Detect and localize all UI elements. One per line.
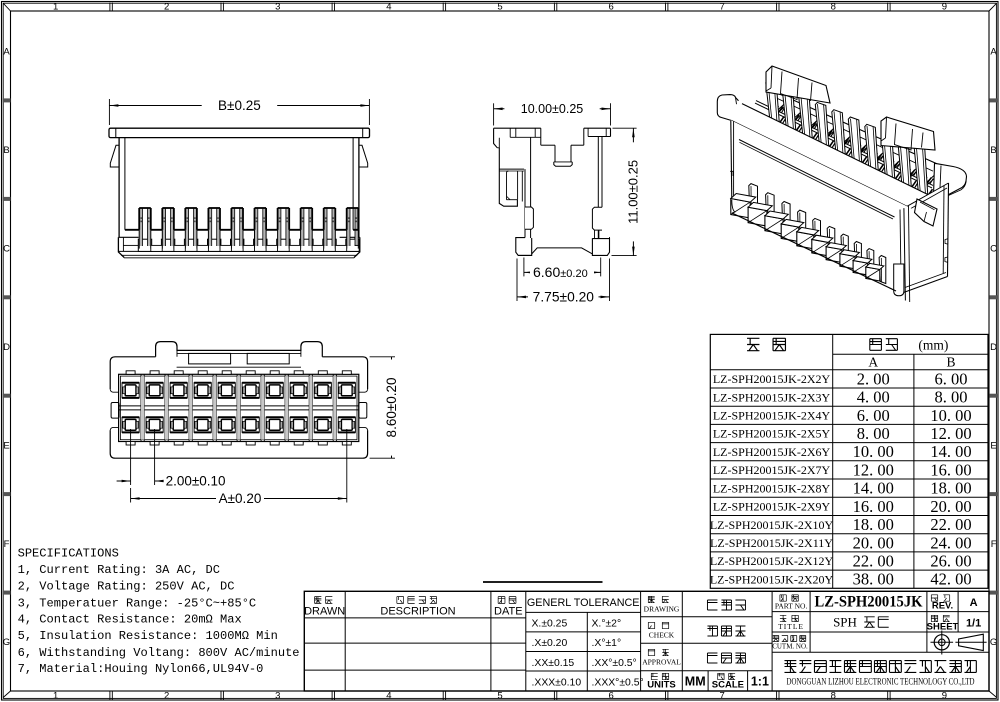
svg-text:E: E [990,440,996,451]
svg-text:MM: MM [685,675,706,689]
svg-text:5: 5 [497,2,502,13]
svg-text:24. 00: 24. 00 [930,533,971,552]
svg-text:A: A [868,355,878,370]
svg-text:3: 3 [275,690,280,701]
svg-text:DRAWN: DRAWN [304,606,345,618]
svg-text:A±0.20: A±0.20 [219,491,262,506]
svg-text:20. 00: 20. 00 [853,533,894,552]
svg-text:6: 6 [608,2,613,13]
svg-text:6. 00: 6. 00 [935,369,968,388]
svg-text:X.°±2°: X.°±2° [592,619,622,630]
svg-text:X.±0.25: X.±0.25 [532,619,568,630]
svg-text:E: E [3,440,9,451]
svg-text:C: C [3,244,10,255]
svg-text:10. 00: 10. 00 [930,406,971,425]
svg-text:SCALE: SCALE [712,680,744,691]
svg-text:B: B [946,355,955,370]
svg-text:8: 8 [831,690,836,701]
svg-text:9: 9 [942,690,947,701]
svg-text:A: A [3,47,10,58]
svg-text:6: 6 [608,690,613,701]
svg-text:F: F [991,539,997,550]
svg-text:14. 00: 14. 00 [930,442,971,461]
svg-text:CUTM. NO.: CUTM. NO. [772,643,808,651]
svg-text:4: 4 [386,690,391,701]
svg-text:.XX°±0.5°: .XX°±0.5° [592,658,637,669]
svg-text:12. 00: 12. 00 [930,424,971,443]
svg-text:.X°±1°: .X°±1° [592,638,622,649]
svg-text:11.00±0.25: 11.00±0.25 [626,160,641,224]
svg-text:16. 00: 16. 00 [930,460,971,479]
svg-text:D: D [3,342,10,353]
svg-text:42. 00: 42. 00 [930,570,971,589]
svg-text:16. 00: 16. 00 [853,497,894,516]
svg-text:7, Material:Houing Nylon66,UL9: 7, Material:Houing Nylon66,UL94V-0 [18,662,264,676]
svg-text:38. 00: 38. 00 [853,570,894,589]
svg-text:REV.: REV. [932,601,953,612]
svg-text:5, Insulation Resistance: 1000: 5, Insulation Resistance: 1000MΩ Min [18,629,278,643]
svg-text:DATE: DATE [494,606,523,618]
svg-text:1:1: 1:1 [751,675,769,689]
svg-text:LZ-SPH20015JK-2X5Y: LZ-SPH20015JK-2X5Y [713,427,831,441]
svg-text:10. 00: 10. 00 [853,442,894,461]
svg-text:3: 3 [275,2,280,13]
svg-text:LZ-SPH20015JK-2X11Y: LZ-SPH20015JK-2X11Y [710,536,833,550]
svg-text:5: 5 [497,690,502,701]
svg-text:1: 1 [53,690,58,701]
svg-text:F: F [4,539,10,550]
svg-text:2, Voltage Rating: 250V AC, DC: 2, Voltage Rating: 250V AC, DC [18,580,235,594]
svg-text:LZ-SPH20015JK-2X3Y: LZ-SPH20015JK-2X3Y [713,390,831,404]
svg-text:2. 00: 2. 00 [857,369,890,388]
svg-text:3, Temperatuer Range: -25°C~+8: 3, Temperatuer Range: -25°C~+85°C [18,596,257,610]
svg-text:2.00±0.10: 2.00±0.10 [166,474,226,489]
svg-text:C: C [990,244,997,255]
svg-text:14. 00: 14. 00 [853,479,894,498]
svg-text:26. 00: 26. 00 [930,552,971,571]
svg-text:A: A [970,597,978,609]
svg-text:B: B [990,145,996,156]
svg-text:LZ-SPH20015JK-2X10Y: LZ-SPH20015JK-2X10Y [710,518,834,532]
svg-text:8: 8 [831,2,836,13]
svg-text:DESCRIPTION: DESCRIPTION [380,606,455,618]
svg-text:LZ-SPH20015JK-2X9Y: LZ-SPH20015JK-2X9Y [713,500,831,514]
svg-text:B±0.25: B±0.25 [218,98,261,113]
svg-text:DONGGUAN LIZHOU ELECTRONIC TEC: DONGGUAN LIZHOU ELECTRONIC TECHNOLOGY CO… [787,678,975,688]
svg-text:18. 00: 18. 00 [853,515,894,534]
svg-text:SHEET: SHEET [927,622,959,633]
svg-text:D: D [990,342,997,353]
svg-text:4: 4 [386,2,391,13]
svg-text:7: 7 [720,2,725,13]
svg-text:7: 7 [720,690,725,701]
svg-text:2: 2 [164,2,169,13]
svg-text:1, Current Rating: 3A AC, DC: 1, Current Rating: 3A AC, DC [18,563,220,577]
svg-text:GENERL TOLERANCE: GENERL TOLERANCE [527,597,640,609]
svg-text:SPECIFICATIONS: SPECIFICATIONS [18,547,119,561]
svg-text:CHECK: CHECK [649,631,675,640]
svg-text:6. 00: 6. 00 [857,406,890,425]
svg-text:6, Withstanding Voltang: 800V: 6, Withstanding Voltang: 800V AC/minute [18,646,300,660]
svg-text:B: B [3,145,9,156]
svg-text:LZ-SPH20015JK-2X8Y: LZ-SPH20015JK-2X8Y [713,481,831,495]
svg-text:DRAWING: DRAWING [644,605,680,614]
svg-text:LZ-SPH20015JK-2X2Y: LZ-SPH20015JK-2X2Y [713,372,831,386]
svg-text:1/1: 1/1 [966,618,981,630]
svg-text:.XXX°±0.5°: .XXX°±0.5° [592,677,644,688]
svg-text:LZ-SPH20015JK-2X12Y: LZ-SPH20015JK-2X12Y [710,554,834,568]
svg-text:LZ-SPH20015JK-2X7Y: LZ-SPH20015JK-2X7Y [713,463,831,477]
svg-text:UNITS: UNITS [647,680,676,691]
svg-text:18. 00: 18. 00 [930,479,971,498]
svg-text:22. 00: 22. 00 [930,515,971,534]
svg-text:G: G [990,637,997,648]
svg-text:.X±0.20: .X±0.20 [532,638,568,649]
svg-text:9: 9 [942,2,947,13]
svg-text:TITLE: TITLE [778,622,804,631]
svg-text:4, Contact Resistance: 20mΩ Ma: 4, Contact Resistance: 20mΩ Max [18,613,242,627]
svg-text:G: G [3,637,10,648]
svg-text:LZ-SPH20015JK-2X6Y: LZ-SPH20015JK-2X6Y [713,445,831,459]
svg-text:LZ-SPH20015JK-2X4Y: LZ-SPH20015JK-2X4Y [713,409,831,423]
svg-text:12. 00: 12. 00 [853,460,894,479]
svg-text:2: 2 [164,690,169,701]
svg-text:10.00±0.25: 10.00±0.25 [521,102,584,116]
svg-text:8.60±0.20: 8.60±0.20 [384,377,399,437]
svg-text:LZ-SPH20015JK-2X20Y: LZ-SPH20015JK-2X20Y [710,572,834,586]
svg-text:7.75±0.20: 7.75±0.20 [533,289,595,304]
svg-text:PART NO.: PART NO. [775,602,808,611]
svg-text:LZ-SPH20015JK: LZ-SPH20015JK [815,594,923,611]
svg-text:.XX±0.15: .XX±0.15 [532,658,575,669]
svg-text:(mm): (mm) [918,337,948,352]
svg-text:8. 00: 8. 00 [935,388,968,407]
svg-text:.XXX±0.10: .XXX±0.10 [532,677,582,688]
svg-text:4. 00: 4. 00 [857,388,890,407]
svg-text:APPROVAL: APPROVAL [642,658,681,667]
svg-text:8. 00: 8. 00 [857,424,890,443]
svg-text:A: A [990,47,997,58]
svg-text:20. 00: 20. 00 [930,497,971,516]
svg-text:1: 1 [53,2,58,13]
svg-text:22. 00: 22. 00 [853,552,894,571]
svg-text:SPH: SPH [833,615,857,630]
